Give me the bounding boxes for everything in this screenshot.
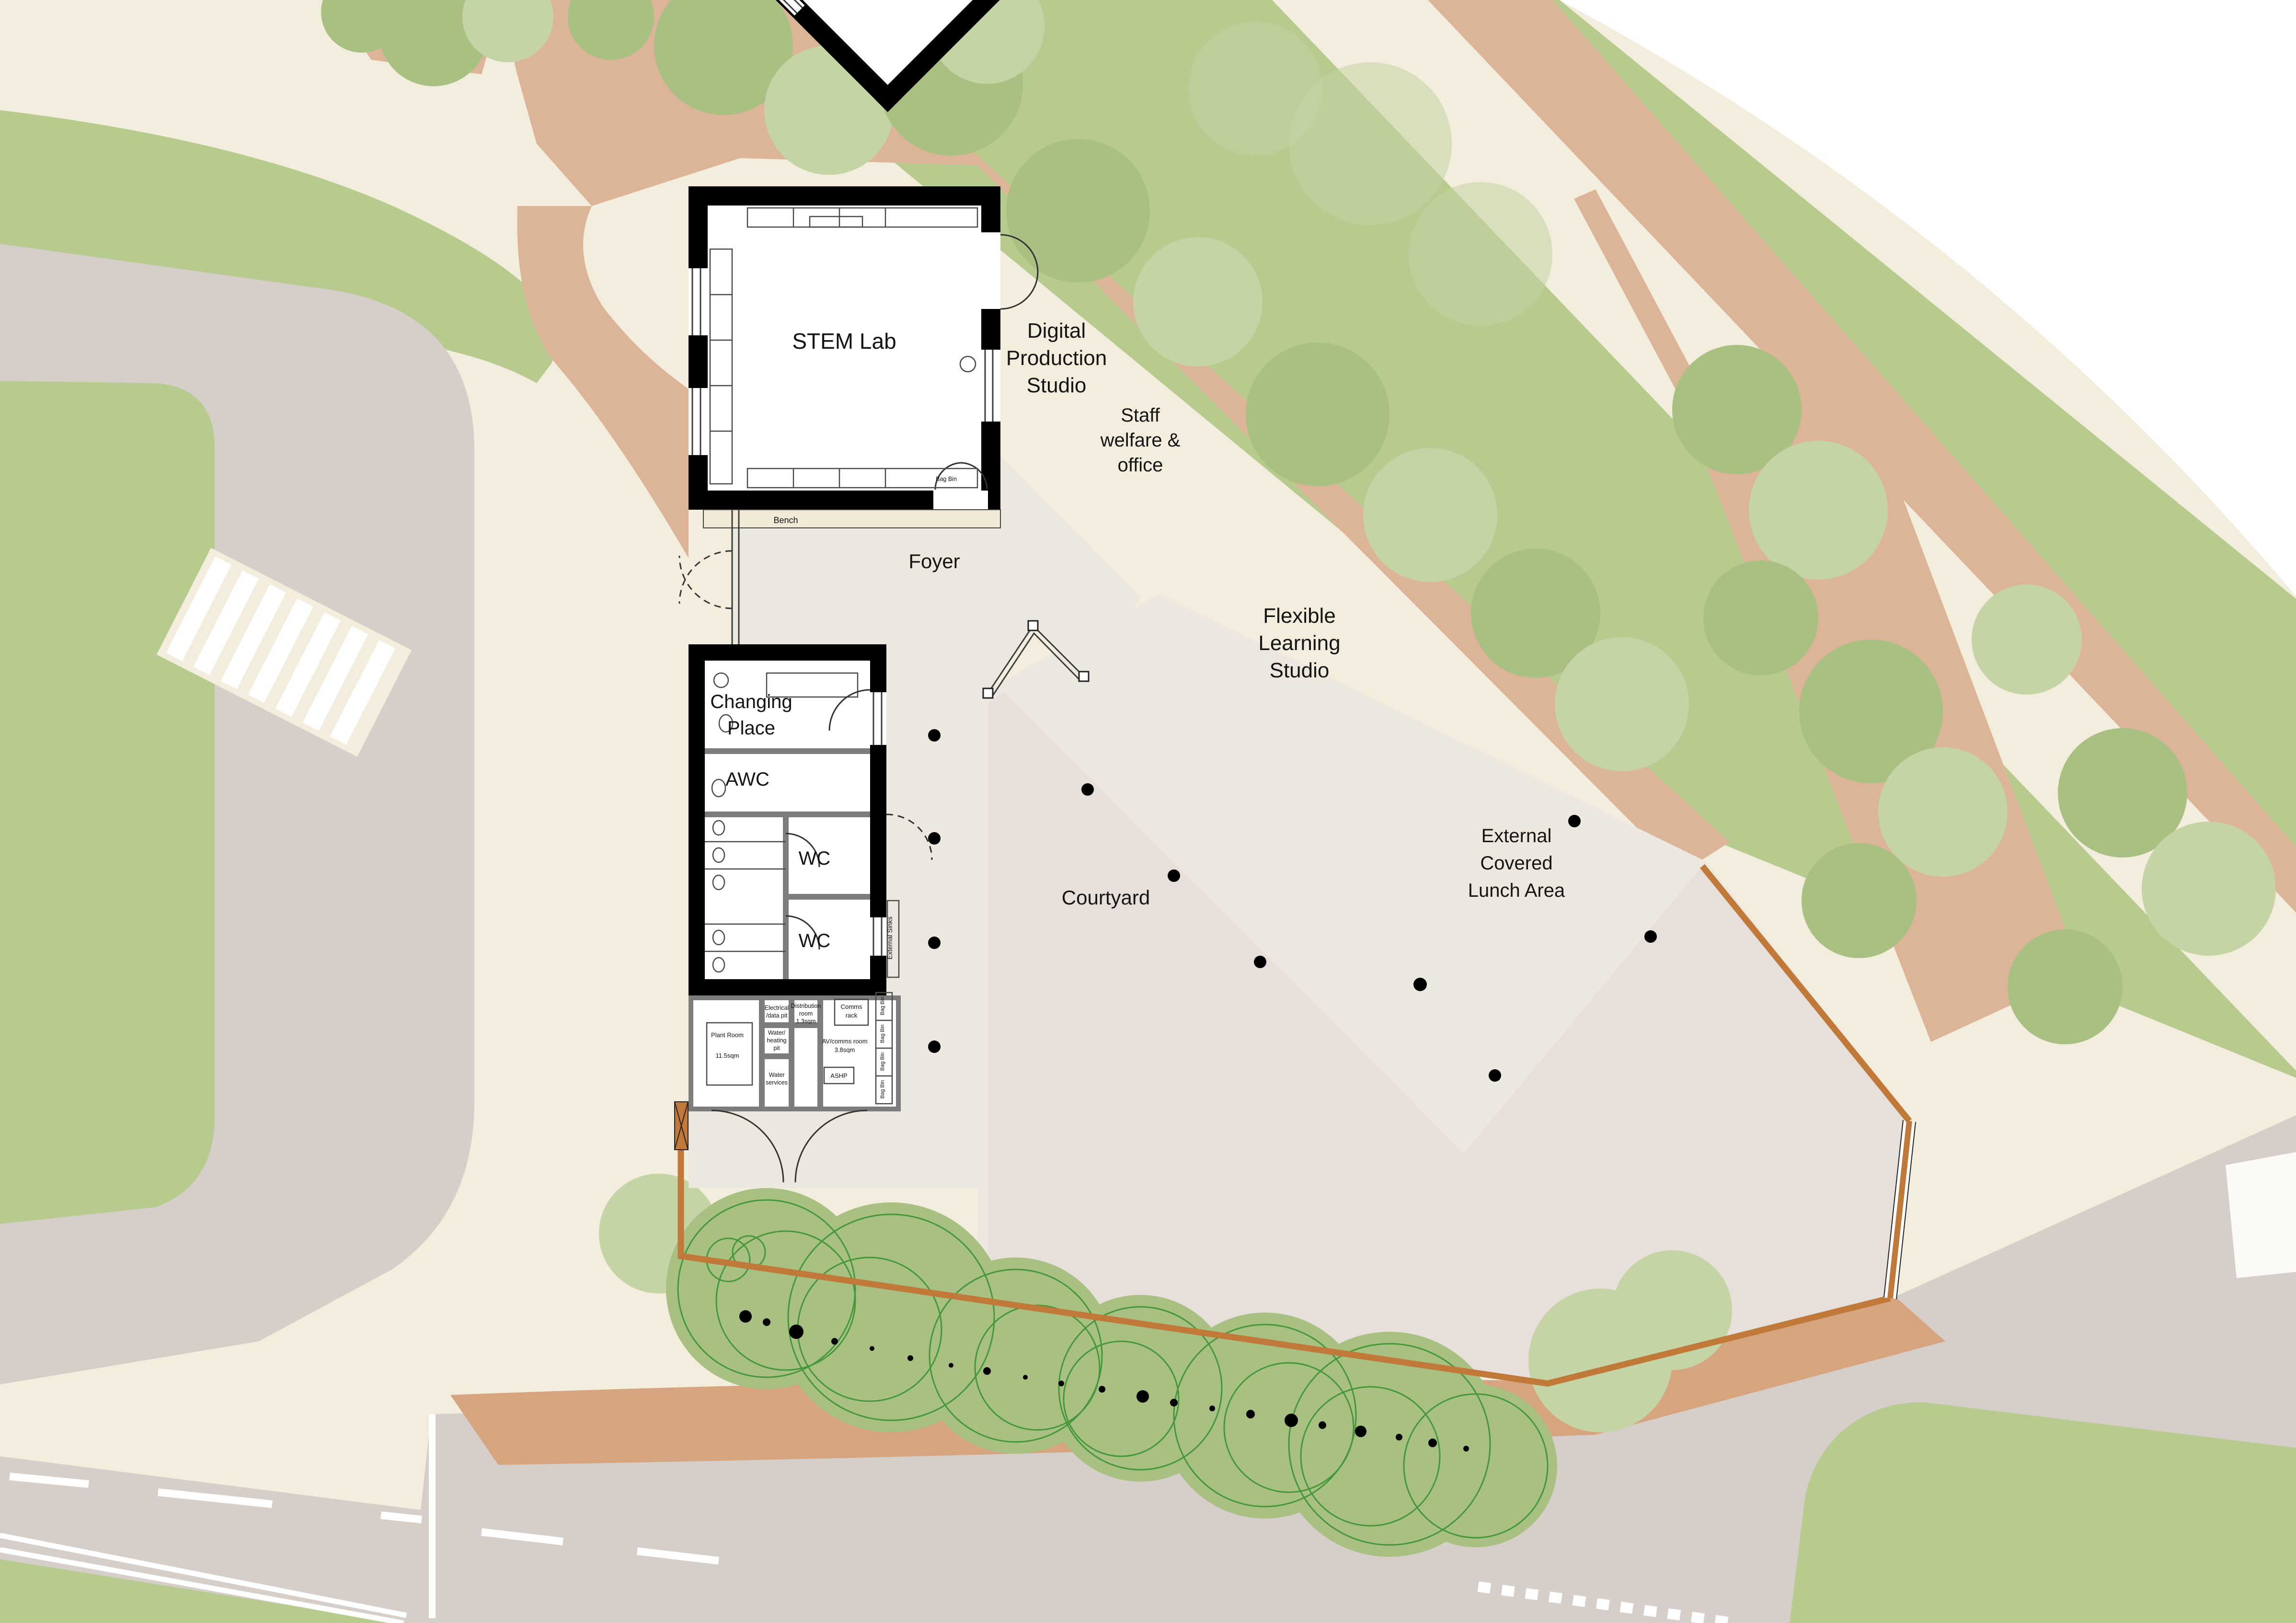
site-plan: Services Bag Bin Bag Bin (0, 0, 2296, 1623)
label-bag-bin-1: Bag Bin (880, 997, 885, 1016)
label-ws-1: Water (769, 1072, 785, 1078)
label-ashp: ASHP (830, 1072, 847, 1079)
label-dps-1: Digital (1027, 319, 1086, 343)
label-foyer: Foyer (908, 550, 960, 572)
label-dist-3: 1.3sqm (796, 1018, 816, 1025)
label-courtyard: Courtyard (1062, 886, 1150, 909)
label-dist-1: Distribution (791, 1003, 821, 1009)
label-lunch-3: Lunch Area (1468, 880, 1565, 901)
label-ws-2: services (766, 1079, 788, 1086)
label-comms-2: rack (846, 1012, 858, 1019)
label-staff-3: office (1118, 455, 1163, 476)
label-awc: AWC (725, 769, 769, 790)
grass-block-left (0, 381, 215, 1224)
label-wh-3: pit (773, 1045, 780, 1052)
label-wh-2: heating (767, 1037, 786, 1044)
label-lunch-1: External (1481, 825, 1552, 846)
label-flex-3: Studio (1270, 659, 1330, 682)
label-comms-1: Comms (841, 1003, 862, 1010)
label-elec-1: Electrical (765, 1005, 789, 1011)
white-pad-right-edge (2226, 1152, 2296, 1278)
label-flex-2: Learning (1258, 631, 1340, 655)
label-wh-1: Water/ (768, 1029, 786, 1036)
label-elec-2: /data pit (766, 1012, 788, 1019)
label-lunch-2: Covered (1480, 853, 1552, 874)
label-plant-2: 11.5sqm (716, 1052, 739, 1059)
label-staff-2: welfare & (1100, 430, 1181, 451)
label-dist-2: room (799, 1010, 813, 1017)
label-external-sinks: External Sinks (886, 916, 894, 959)
label-plant-1: Plant Room (711, 1031, 744, 1039)
label-bag-bin-4: Bag Bin (880, 1080, 885, 1099)
label-wc-upper: WC (799, 848, 831, 869)
label-bag-bin-stem: Bag Bin (936, 476, 957, 482)
label-bag-bin-3: Bag Bin (880, 1052, 885, 1071)
label-changing-1: Changing (710, 691, 792, 712)
label-wc-lower: WC (799, 930, 831, 951)
label-changing-2: Place (727, 718, 775, 739)
label-dps-3: Studio (1027, 374, 1087, 397)
label-stem-lab: STEM Lab (792, 329, 896, 354)
label-bag-bin-2: Bag Bin (880, 1025, 885, 1043)
label-av-2: 3.8sqm (835, 1046, 855, 1053)
label-staff-1: Staff (1121, 405, 1160, 426)
label-dps-2: Production (1006, 346, 1107, 370)
label-flex-1: Flexible (1263, 604, 1336, 628)
label-av-1: AV/comms room (822, 1038, 867, 1045)
label-bench: Bench (773, 515, 798, 525)
bench-strip (703, 510, 1000, 528)
